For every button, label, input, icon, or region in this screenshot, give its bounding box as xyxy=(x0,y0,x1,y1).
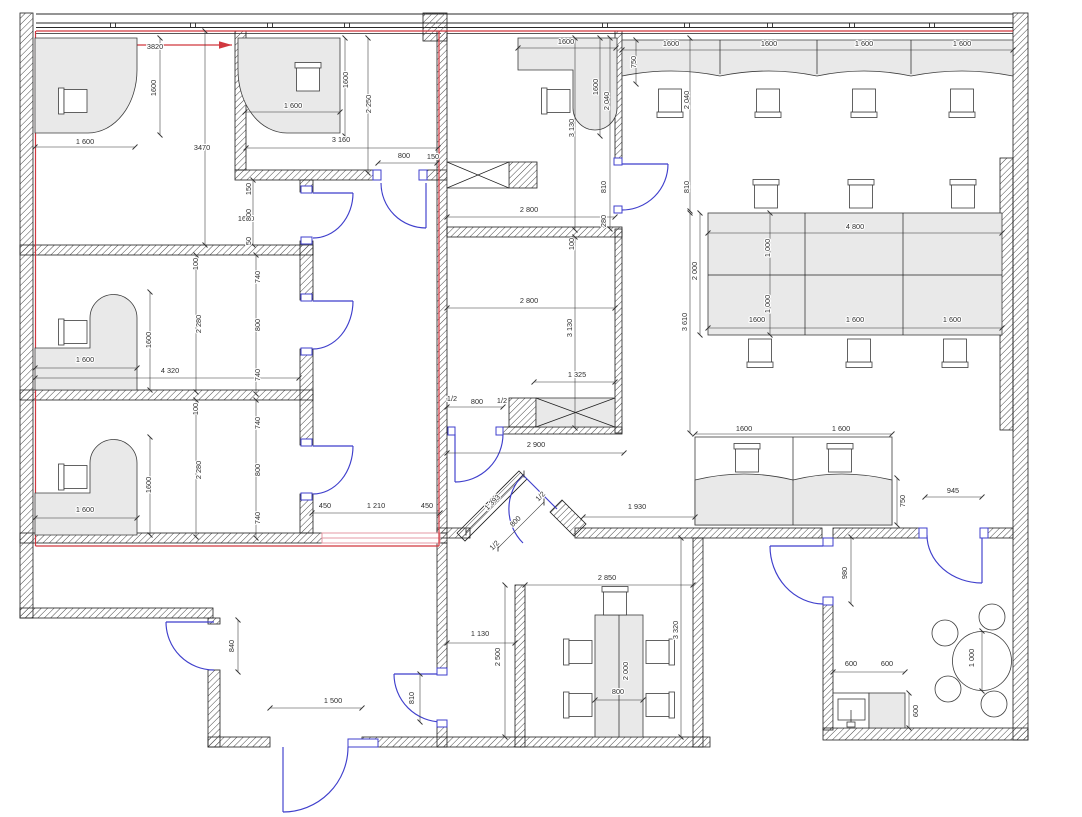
dim-label: 2 800 xyxy=(520,205,538,214)
door-810-hall xyxy=(394,668,447,727)
door-room-d xyxy=(301,439,353,500)
dim-label: 1600 xyxy=(144,332,153,348)
door-945 xyxy=(919,528,988,583)
dim-label: 750 xyxy=(629,56,638,68)
dim-label: 2 250 xyxy=(364,95,373,113)
dim-label: 1 600 xyxy=(855,39,873,48)
dim-label: 1 600 xyxy=(943,315,961,324)
dim-label: 1600 xyxy=(761,39,777,48)
dim-label: 1600 xyxy=(749,315,765,324)
dim-label: 150 xyxy=(427,152,439,161)
door-room-c xyxy=(301,294,353,355)
door-840 xyxy=(166,622,214,670)
wardrobe-1 xyxy=(447,162,509,188)
kitchen-counter xyxy=(833,693,905,728)
desk-room-a xyxy=(35,38,137,133)
dim-label: 3 610 xyxy=(680,313,689,331)
desk-room-b xyxy=(238,38,340,133)
dim-label: 50 xyxy=(244,237,253,245)
dim-label: 1 000 xyxy=(763,295,772,313)
dim-label: 1 930 xyxy=(628,502,646,511)
door-980 xyxy=(770,538,833,605)
dim-label: 1 600 xyxy=(76,137,94,146)
dim-label: 2 040 xyxy=(682,91,691,109)
dim-label: 100 xyxy=(191,403,200,415)
dim-label: 1 600 xyxy=(76,505,94,514)
door-room-a xyxy=(301,186,353,244)
dim-label: 2 280 xyxy=(194,461,203,479)
dim-label: 1 210 xyxy=(367,501,385,510)
desk-room-e xyxy=(518,38,617,130)
dim-label: 1 500 xyxy=(324,696,342,705)
dim-label: 980 xyxy=(840,567,849,579)
sink xyxy=(838,699,865,720)
dim-label: 810 xyxy=(599,181,608,193)
dim-label: 740 xyxy=(253,417,262,429)
bottom-window xyxy=(322,533,440,543)
dim-label: 3 320 xyxy=(671,621,680,639)
dim-label: 2 850 xyxy=(598,573,616,582)
dim-label: 800 xyxy=(612,687,624,696)
dim-label: 750 xyxy=(898,495,907,507)
walls xyxy=(20,13,1028,747)
dim-label: 1/2 xyxy=(533,489,547,503)
door-room-e xyxy=(614,158,668,213)
dim-label: 740 xyxy=(253,369,262,381)
dim-label: 1600 xyxy=(149,80,158,96)
dim-label: 1 600 xyxy=(76,355,94,364)
dim-label: 3470 xyxy=(194,143,210,152)
dim-label: 1 600 xyxy=(846,315,864,324)
dim-label: 810 xyxy=(682,181,691,193)
stool xyxy=(932,620,958,646)
dim-label: 280 xyxy=(599,215,608,227)
dim-label: 3 130 xyxy=(567,119,576,137)
dim-label: 1/2 xyxy=(447,394,457,403)
dim-label: 800 xyxy=(398,151,410,160)
dim-label: 4 320 xyxy=(161,366,179,375)
entrance-door-1500 xyxy=(283,739,378,812)
dim-label: 1 000 xyxy=(763,239,772,257)
dim-label: 840 xyxy=(227,640,236,652)
dim-label: 1 600 xyxy=(953,39,971,48)
dim-label: 1 325 xyxy=(568,370,586,379)
dim-label: 600 xyxy=(911,705,920,717)
door-room-f xyxy=(448,427,503,482)
dim-label: 2 000 xyxy=(621,662,630,680)
dim-label: 1600 xyxy=(736,424,752,433)
dim-label: 2 500 xyxy=(493,648,502,666)
dim-label: 2 040 xyxy=(602,92,611,110)
wardrobe-2 xyxy=(536,398,615,427)
dim-label: 2 900 xyxy=(527,440,545,449)
dim-label: 1600 xyxy=(558,37,574,46)
dim-label: 3 160 xyxy=(332,135,350,144)
floor-plan-drawing: 38203470160016001 6001 60016002 2503 160… xyxy=(0,0,1082,817)
dim-label: 1600 xyxy=(341,72,350,88)
dim-label: 800 xyxy=(244,209,253,221)
dim-label: 2 800 xyxy=(520,296,538,305)
dim-label: 100 xyxy=(567,238,576,250)
dim-label: 1600 xyxy=(591,79,600,95)
stool xyxy=(981,691,1007,717)
dim-label: 740 xyxy=(253,271,262,283)
dim-label: 600 xyxy=(845,659,857,668)
dim-label: 100 xyxy=(191,258,200,270)
dim-label: 1600 xyxy=(663,39,679,48)
dim-label: 3820 xyxy=(147,42,163,51)
dim-label: 945 xyxy=(947,486,959,495)
floor-plan-canvas: 38203470160016001 6001 60016002 2503 160… xyxy=(0,0,1082,817)
dim-label: 1 600 xyxy=(284,101,302,110)
dim-label: 450 xyxy=(319,501,331,510)
dim-label: 2 000 xyxy=(690,262,699,280)
dim-label: 3 130 xyxy=(565,319,574,337)
stool xyxy=(935,676,961,702)
dim-label: 810 xyxy=(407,692,416,704)
dim-label: 800 xyxy=(471,397,483,406)
dim-label: 2 280 xyxy=(194,315,203,333)
dim-label: 150 xyxy=(244,183,253,195)
dim-label: 600 xyxy=(881,659,893,668)
dim-label: 800 xyxy=(253,464,262,476)
stool xyxy=(979,604,1005,630)
dim-label: 1 130 xyxy=(471,629,489,638)
dim-label: 450 xyxy=(421,501,433,510)
door-room-b xyxy=(373,170,427,228)
dim-label: 1 600 xyxy=(832,424,850,433)
dim-label: 1 000 xyxy=(967,649,976,667)
dim-label: 1/2 xyxy=(487,538,501,552)
dim-label: 1600 xyxy=(144,477,153,493)
dim-label: 4 800 xyxy=(846,222,864,231)
dim-label: 740 xyxy=(253,512,262,524)
dim-label: 800 xyxy=(508,514,523,529)
dim-label: 800 xyxy=(253,319,262,331)
dim-label: 1/2 xyxy=(497,396,507,405)
